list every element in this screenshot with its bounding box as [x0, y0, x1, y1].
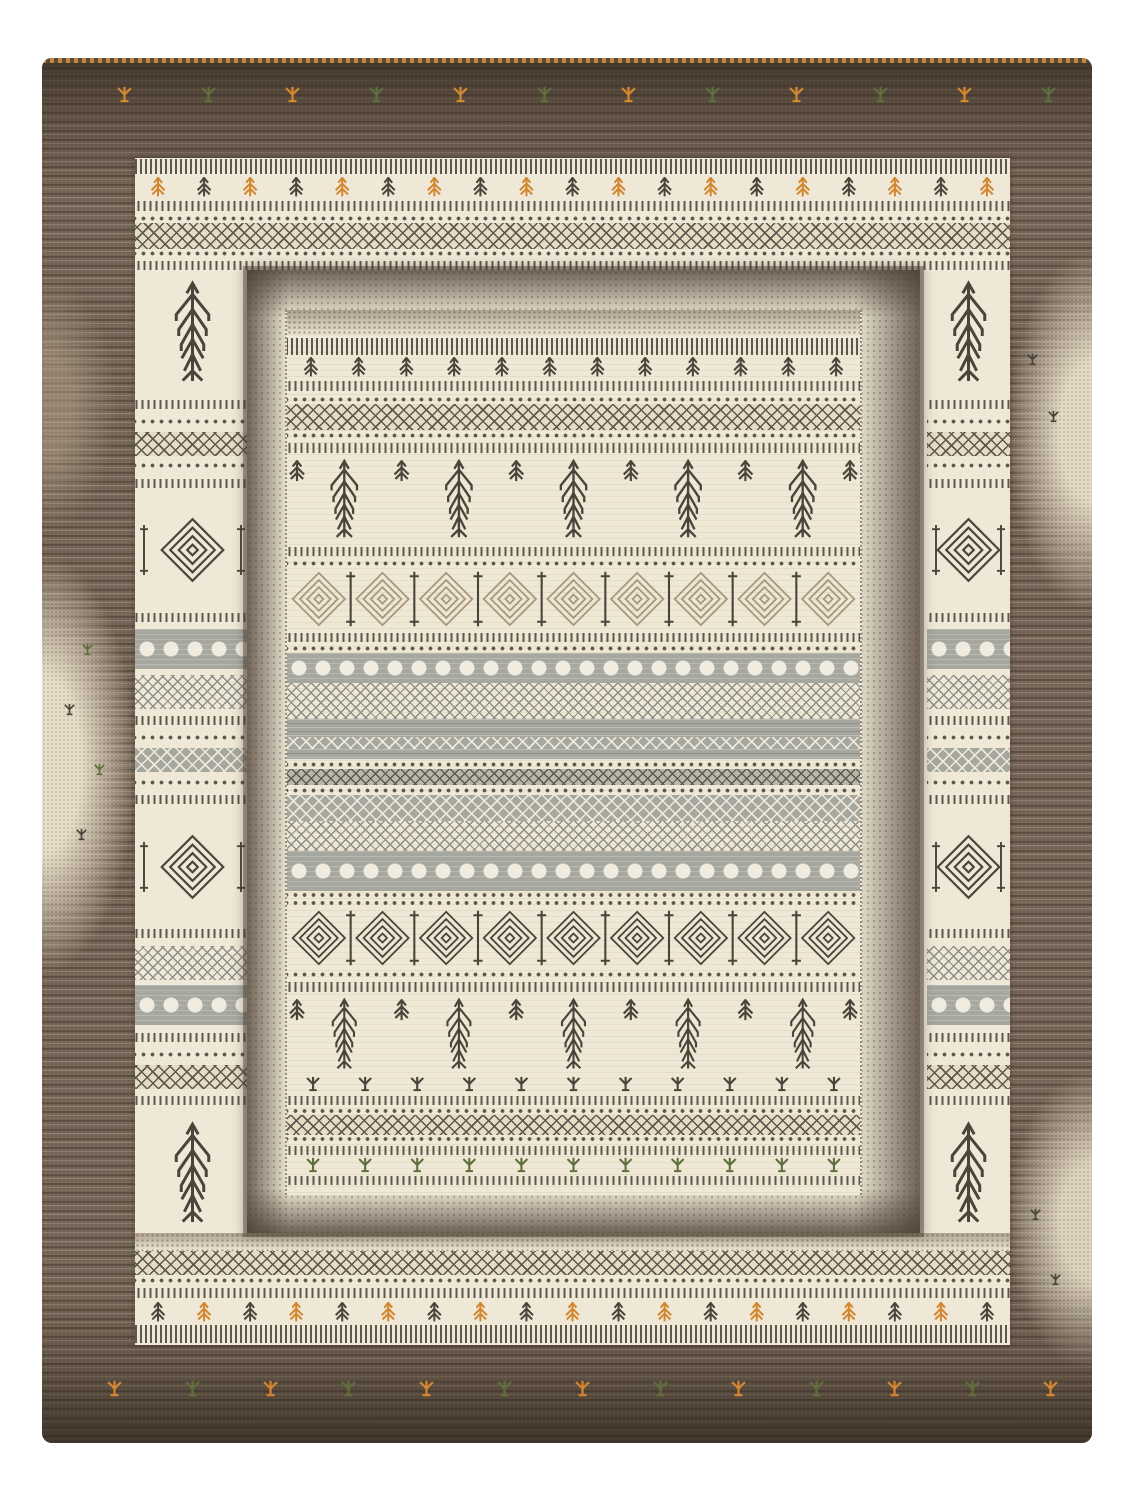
trees-alt-row: [135, 176, 1010, 198]
cross-band: [287, 683, 860, 719]
border-plant-motif: [76, 828, 87, 841]
big-diamonds-row: [287, 568, 860, 630]
border-plant-motif: [1048, 410, 1059, 423]
corner-tree-band: [135, 1113, 250, 1233]
tick-band: [287, 1173, 860, 1187]
border-plant-motif: [64, 703, 75, 716]
lattice-band: [927, 1065, 1010, 1089]
tick-band: [927, 610, 1010, 624]
top-selvedge-edge: [42, 58, 1092, 63]
border-plant-motif: [789, 86, 804, 103]
tick-band: [287, 544, 860, 558]
dots-band: [287, 899, 860, 907]
dots-band: [287, 891, 860, 899]
medallion-row: [927, 495, 1010, 605]
shadow-frame-right-edge: [854, 270, 920, 1233]
dots-band: [135, 249, 1010, 258]
tick-band: [287, 440, 860, 456]
tick-band: [135, 927, 250, 941]
lattice-band: [287, 404, 860, 430]
greyzz-band: [287, 795, 860, 821]
fringe-band: [135, 1323, 1010, 1345]
border-plant-motif: [1043, 1380, 1058, 1397]
border-plant-motif: [341, 1380, 356, 1397]
border-plant-motif: [809, 1380, 824, 1397]
dots-band: [927, 733, 1010, 743]
border-plant-motif: [419, 1380, 434, 1397]
dots-band: [287, 1107, 860, 1115]
border-plant-motif: [887, 1380, 902, 1397]
tick-band: [135, 198, 1010, 214]
tick-band: [287, 378, 860, 394]
tick-band: [927, 476, 1010, 490]
tick-band: [135, 610, 250, 624]
border-plant-motif: [263, 1380, 278, 1397]
greydots-band: [287, 653, 860, 683]
central-field: [285, 310, 862, 1195]
border-plant-motif: [94, 763, 105, 776]
dots-band: [135, 777, 250, 787]
tick-band: [135, 1094, 250, 1108]
dots-band: [927, 1049, 1010, 1059]
trees-alt-band: [135, 1301, 1010, 1323]
dots-band: [287, 394, 860, 404]
trees-alt-row: [287, 356, 860, 378]
plants-band: [287, 1157, 860, 1173]
cross-band: [135, 675, 250, 709]
lattice-band: [287, 1115, 860, 1135]
tick-band: [287, 1143, 860, 1157]
dots-band: [135, 416, 250, 426]
pines-band: [287, 995, 860, 1075]
greyzz-band: [135, 748, 250, 772]
border-plant-motif: [285, 86, 300, 103]
dots-band: [287, 430, 860, 440]
medallion-row: [927, 812, 1010, 922]
border-plant-motif: [653, 1380, 668, 1397]
dots-band: [927, 416, 1010, 426]
greydots-band: [927, 985, 1010, 1025]
dots-band: [287, 785, 860, 795]
dots-band: [135, 461, 250, 471]
medallion-row: [135, 812, 250, 922]
dots-band: [135, 733, 250, 743]
border-plant-motif: [453, 86, 468, 103]
border-plant-motif: [1030, 1208, 1041, 1221]
plants-row: [287, 1157, 860, 1173]
dots-band: [287, 644, 860, 653]
greydots-band: [927, 629, 1010, 669]
rug-product-photo: [0, 0, 1134, 1500]
tick-band: [927, 714, 1010, 728]
border-plant-motif: [117, 86, 132, 103]
tick-band: [135, 792, 250, 806]
tick-band: [927, 927, 1010, 941]
border-plant-motif: [369, 86, 384, 103]
cross-band: [927, 675, 1010, 709]
plants-band: [287, 1075, 860, 1093]
border-plant-motif: [1050, 1273, 1061, 1286]
border-plant-motif: [873, 86, 888, 103]
pines-row: [287, 995, 860, 1075]
border-plant-motif: [82, 643, 93, 656]
medallion-row: [135, 495, 250, 605]
dots-band: [287, 759, 860, 769]
trees-alt-band: [135, 176, 1010, 198]
dots-band: [135, 1049, 250, 1059]
border-plant-motif: [1027, 353, 1038, 366]
dots-band: [927, 461, 1010, 471]
trees-alt-band: [287, 356, 860, 378]
border-plant-motif: [497, 1380, 512, 1397]
tick-band: [287, 1093, 860, 1107]
tick-band: [927, 1030, 1010, 1044]
tick-band: [135, 714, 250, 728]
tick-band: [927, 1094, 1010, 1108]
dots-band: [927, 777, 1010, 787]
border-plant-motif: [957, 86, 972, 103]
tick-band: [287, 979, 860, 995]
greydia-band: [287, 769, 860, 785]
plants-row: [287, 1075, 860, 1093]
dots-band: [287, 969, 860, 979]
shadow-frame-bottom-edge: [247, 1189, 920, 1233]
big-diamonds-band: [287, 568, 860, 630]
border-plant-motif: [575, 1380, 590, 1397]
grey-band: [287, 749, 860, 759]
medallion-band: [927, 495, 1010, 605]
lattice-band: [135, 432, 250, 456]
speckle-band: [135, 1233, 1010, 1251]
tick-band: [927, 397, 1010, 411]
tick-band: [287, 630, 860, 644]
corner-tree-band: [927, 1113, 1010, 1233]
lattice-band: [927, 432, 1010, 456]
cross-band: [287, 821, 860, 851]
fringe-band: [287, 336, 860, 356]
border-plant-motif: [107, 1380, 122, 1397]
border-plant-motif: [705, 86, 720, 103]
rug: [42, 58, 1092, 1443]
cross-band: [927, 946, 1010, 980]
dots-band: [287, 1135, 860, 1143]
dots-band: [135, 214, 1010, 223]
ring-top-band: [135, 158, 1010, 272]
grey-band: [287, 719, 860, 737]
ring-bottom-band: [135, 1233, 1010, 1345]
greydots-band: [135, 985, 250, 1025]
lattice-band: [135, 223, 1010, 249]
medallion-band: [135, 812, 250, 922]
tick-band: [135, 476, 250, 490]
pines-band: [287, 456, 860, 544]
border-plant-motif: [621, 86, 636, 103]
medallion-band: [927, 812, 1010, 922]
ring-right-column: [927, 272, 1010, 1233]
trees-alt-row: [135, 1301, 1010, 1323]
tick-band: [135, 397, 250, 411]
big-diamonds-band: [287, 907, 860, 969]
ring-left-column: [135, 272, 250, 1233]
pines-row: [287, 456, 860, 544]
fringe-band: [135, 158, 1010, 176]
tick-band: [927, 792, 1010, 806]
greyzz-band: [927, 748, 1010, 772]
border-plant-motif: [185, 1380, 200, 1397]
big-diamonds-row: [287, 907, 860, 969]
greyzz-band: [287, 737, 860, 749]
greydots-band: [287, 851, 860, 891]
corner-tree-row: [927, 272, 1010, 392]
lattice-band: [135, 1065, 250, 1089]
corner-tree-row: [135, 1113, 250, 1233]
greydots-band: [135, 629, 250, 669]
border-plant-motif: [1041, 86, 1056, 103]
border-plant-motif: [731, 1380, 746, 1397]
shadow-frame-left-edge: [247, 270, 289, 1233]
border-plant-motif: [201, 86, 216, 103]
corner-tree-row: [135, 272, 250, 392]
speckle-band: [287, 310, 860, 336]
cross-band: [135, 946, 250, 980]
dots-band: [135, 1275, 1010, 1285]
tick-band: [135, 1285, 1010, 1301]
lattice-band: [135, 1251, 1010, 1275]
corner-tree-row: [927, 1113, 1010, 1233]
dots-band: [287, 558, 860, 568]
medallion-band: [135, 495, 250, 605]
border-plant-motif: [537, 86, 552, 103]
border-plant-motif: [965, 1380, 980, 1397]
corner-tree-band: [135, 272, 250, 392]
corner-tree-band: [927, 272, 1010, 392]
tick-band: [135, 1030, 250, 1044]
